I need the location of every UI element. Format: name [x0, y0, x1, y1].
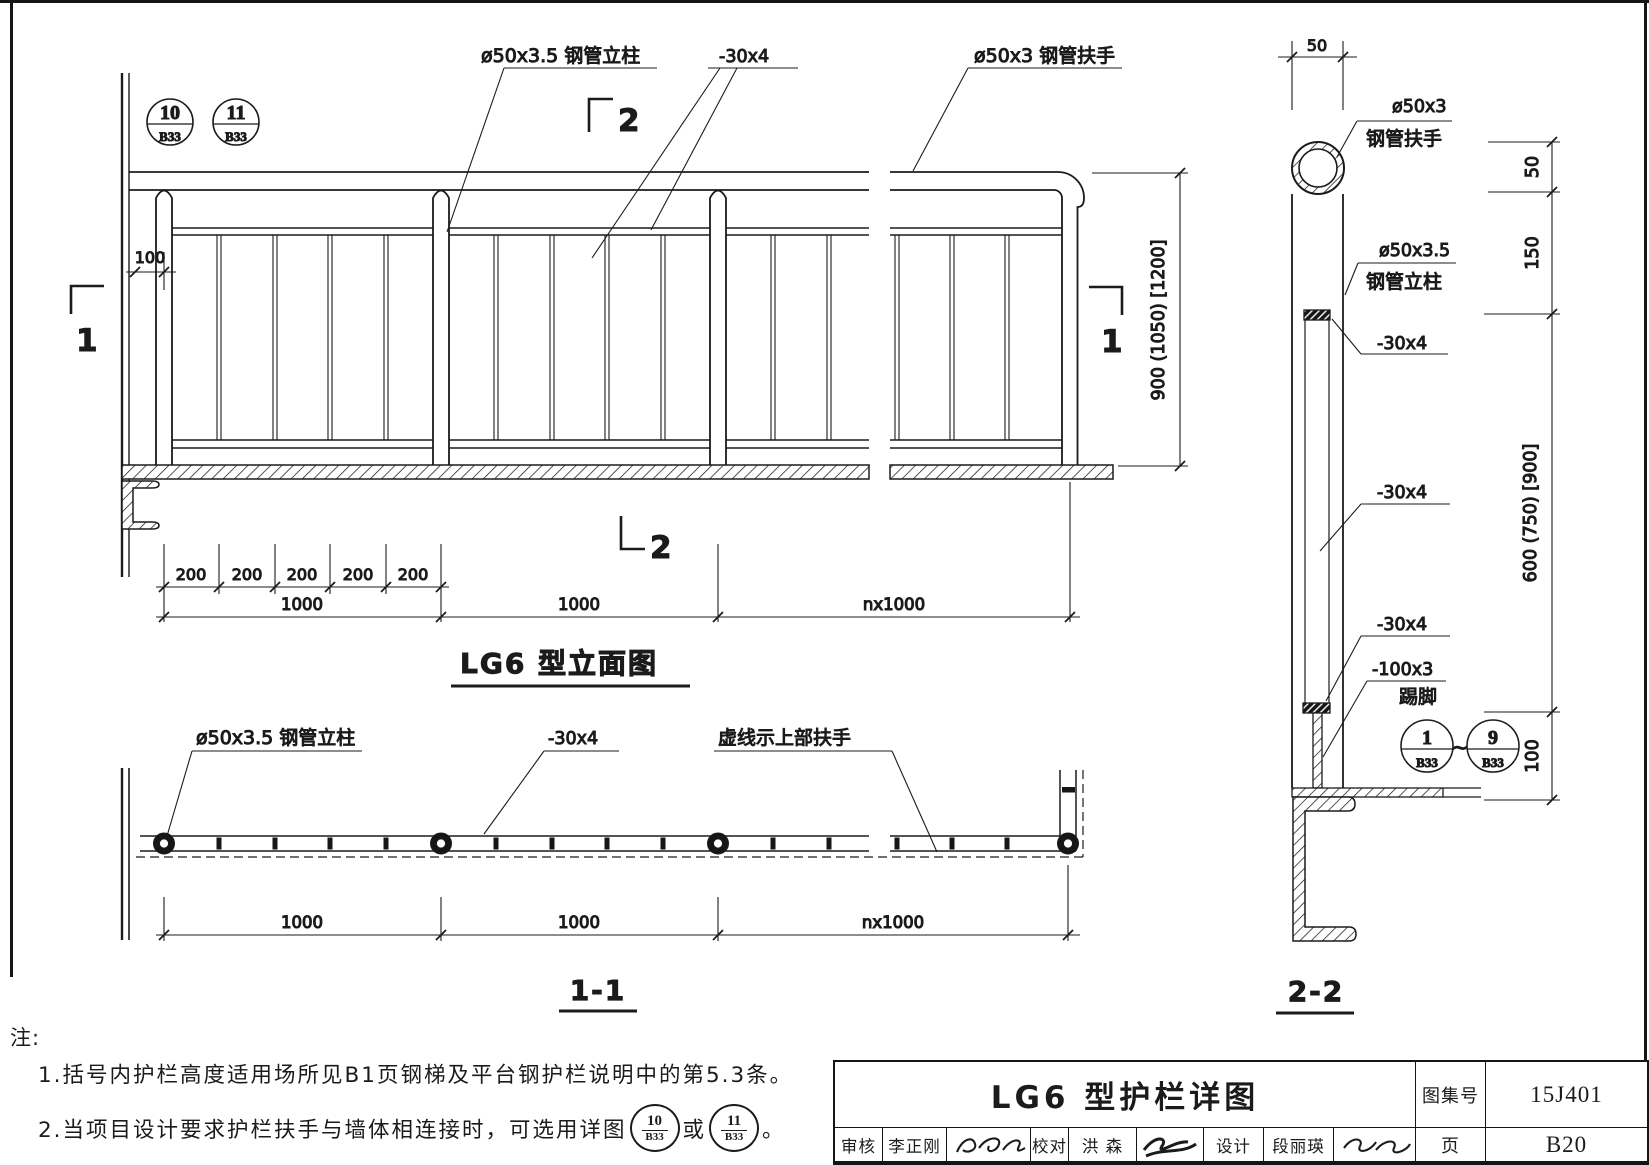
signature-scribble — [1336, 1130, 1414, 1160]
plan-label-flat-bar: -30x4 — [484, 729, 619, 834]
dim-label: 1000 — [558, 913, 600, 932]
elevation-title: LG6 型立面图 — [451, 647, 690, 686]
leader-label: ø50x3 钢管扶手 — [974, 45, 1115, 67]
leader-label: -30x4 — [719, 47, 769, 67]
plan-title: 1-1 — [559, 974, 637, 1011]
drawing-canvas: 10 B33 11 B33 2 2 1 — [0, 0, 1649, 1165]
detail-bubble-11: 11 B33 — [213, 99, 259, 145]
dim-label: 200 — [232, 565, 263, 584]
section-mark-label: 1 — [1101, 324, 1123, 360]
leader-label: 钢管立柱 — [1366, 271, 1442, 293]
detail-bubble-sheet: B33 — [725, 1132, 743, 1143]
leader-label: 钢管扶手 — [1366, 128, 1442, 150]
plan-label-dashed-handrail: 虚线示上部扶手 — [714, 727, 937, 852]
dim-label: nx1000 — [862, 913, 924, 932]
leader-label: 虚线示上部扶手 — [718, 727, 851, 749]
section-mark-2-top: 2 — [589, 99, 640, 139]
detail-bubble-11-inline: 11 B33 — [709, 1104, 759, 1152]
role-design-name: 段丽瑛 — [1263, 1127, 1333, 1161]
detail-bubble-number: 10 — [160, 102, 180, 124]
role-review-label: 审核 — [835, 1127, 882, 1161]
note-line-2: 2.当项目设计要求护栏扶手与墙体相连接时，可选用详图 10 B33 或 11 B… — [38, 1104, 786, 1152]
view-title: LG6 型立面图 — [460, 647, 658, 680]
notes-block: 注: 1.括号内护栏高度适用场所见B1页钢梯及平台钢护栏说明中的第5.3条。 2… — [10, 1022, 825, 1052]
leader-label: -30x4 — [548, 729, 598, 749]
drawing-sheet: 10 B33 11 B33 2 2 1 — [0, 0, 1649, 1165]
detail-bubble-sheet: B33 — [225, 129, 247, 144]
dim-label: nx1000 — [863, 595, 925, 614]
role-design-label: 设计 — [1203, 1127, 1263, 1161]
dim-label: 1000 — [558, 595, 600, 614]
leader-label: ø50x3 — [1392, 97, 1446, 117]
note-2-text: 2.当项目设计要求护栏扶手与墙体相连接时，可选用详图 — [38, 1113, 627, 1144]
elevation-dim-row-1000: 1000 1000 nx1000 — [156, 482, 1080, 622]
detail-bubble-10-inline: 10 B33 — [630, 1104, 680, 1152]
dim-label: 1000 — [281, 913, 323, 932]
signature-scribble — [1138, 1130, 1202, 1160]
plan-linework — [122, 768, 1083, 940]
dim-label: 50 — [1307, 36, 1327, 55]
dim-label: 100 — [135, 248, 166, 267]
section-mark-2-bottom: 2 — [621, 516, 672, 566]
section-label-flat-top: -30x4 — [1332, 319, 1448, 354]
leader-label: -30x4 — [1377, 483, 1427, 503]
detail-bubble-sheet: B33 — [1416, 755, 1438, 770]
detail-bubble-number: 1 — [1422, 727, 1432, 749]
detail-bubble-10: 10 B33 — [147, 99, 193, 145]
title-block: LG6 型护栏详图 图集号 15J401 审核 李正刚 校对 洪 森 设计 段丽… — [833, 1060, 1649, 1163]
note-2-or: 或 — [683, 1113, 707, 1144]
page-label: 页 — [1415, 1127, 1485, 1161]
detail-bubble-sheet: B33 — [159, 129, 181, 144]
elevation-dim-height: 900 (1050) [1200] — [1092, 168, 1188, 471]
atlas-number-value: 15J401 — [1485, 1062, 1647, 1127]
dim-label: 100 — [1523, 739, 1543, 772]
dim-label: 200 — [287, 565, 318, 584]
dim-label: 1000 — [281, 595, 323, 614]
detail-bubble-sheet: B33 — [1482, 755, 1504, 770]
notes-heading: 注: — [10, 1022, 825, 1052]
elevation-label-handrail: ø50x3 钢管扶手 — [913, 45, 1122, 171]
dim-label: 200 — [398, 565, 429, 584]
view-title: 2-2 — [1288, 975, 1345, 1008]
section-label-flat-mid: -30x4 — [1320, 483, 1450, 551]
plan-dim-row: 1000 1000 nx1000 — [156, 865, 1080, 941]
detail-bubble-number: 11 — [727, 1114, 741, 1129]
section-dim-chain: 50 150 600 (750) [900] 100 — [1484, 137, 1560, 805]
elevation-view: 10 B33 11 B33 2 2 1 — [71, 45, 1188, 686]
detail-bubble-number: 10 — [647, 1114, 662, 1129]
leader-label: -30x4 — [1377, 334, 1427, 354]
leader-label: ø50x3.5 钢管立柱 — [196, 727, 355, 749]
detail-range: 1 B33 ~ 9 B33 — [1401, 720, 1519, 772]
elevation-label-flat-bar: -30x4 — [592, 47, 798, 258]
signature-design — [1333, 1127, 1415, 1161]
detail-bubble-number: 11 — [227, 102, 246, 124]
leader-label: ø50x3.5 钢管立柱 — [481, 45, 640, 67]
section-mark-label: 2 — [650, 530, 672, 566]
dim-label: 200 — [343, 565, 374, 584]
note-line-1: 1.括号内护栏高度适用场所见B1页钢梯及平台钢护栏说明中的第5.3条。 — [38, 1058, 793, 1089]
detail-bubble-sheet: B33 — [645, 1132, 663, 1143]
atlas-number-label: 图集号 — [1415, 1062, 1485, 1127]
section-title: 2-2 — [1276, 975, 1354, 1013]
detail-bubble-number: 9 — [1488, 727, 1498, 749]
section-mark-1-left: 1 — [71, 286, 104, 359]
page-number: B20 — [1485, 1127, 1647, 1161]
note-2-period: 。 — [762, 1113, 786, 1144]
role-review-name: 李正刚 — [882, 1127, 946, 1161]
section-mark-1-right: 1 — [1089, 287, 1123, 360]
elevation-dim-offset: 100 — [126, 248, 176, 290]
role-proof-label: 校对 — [1030, 1127, 1068, 1161]
leader-label: 踢脚 — [1399, 686, 1437, 708]
dim-label: 200 — [176, 565, 207, 584]
view-title: 1-1 — [570, 974, 627, 1007]
section-label-post: ø50x3.5 钢管立柱 — [1345, 241, 1456, 295]
drawing-title: LG6 型护栏详图 — [835, 1062, 1415, 1127]
section-label-handrail: ø50x3 钢管扶手 — [1337, 97, 1452, 157]
signature-scribble — [949, 1130, 1029, 1160]
dim-label: 600 (750) [900] — [1521, 444, 1541, 583]
leader-label: ø50x3.5 — [1379, 241, 1450, 261]
role-proof-name: 洪 森 — [1068, 1127, 1136, 1161]
elevation-linework — [122, 73, 1113, 577]
signature-proof — [1136, 1127, 1203, 1161]
section-view: 50 ø50x3 钢管扶手 ø50x3.5 钢管立柱 -30x4 -30x4 — [1276, 36, 1560, 1013]
leader-label: -100x3 — [1372, 660, 1433, 680]
signature-review — [946, 1127, 1030, 1161]
dim-label: 900 (1050) [1200] — [1149, 240, 1169, 401]
plan-label-post: ø50x3.5 钢管立柱 — [167, 727, 362, 836]
leader-label: -30x4 — [1377, 615, 1427, 635]
section-mark-label: 2 — [618, 103, 640, 139]
dim-label: 150 — [1523, 236, 1543, 269]
dim-label: 50 — [1523, 156, 1543, 178]
plan-view: ø50x3.5 钢管立柱 -30x4 虚线示上部扶手 — [122, 727, 1083, 1011]
section-mark-label: 1 — [76, 323, 98, 359]
